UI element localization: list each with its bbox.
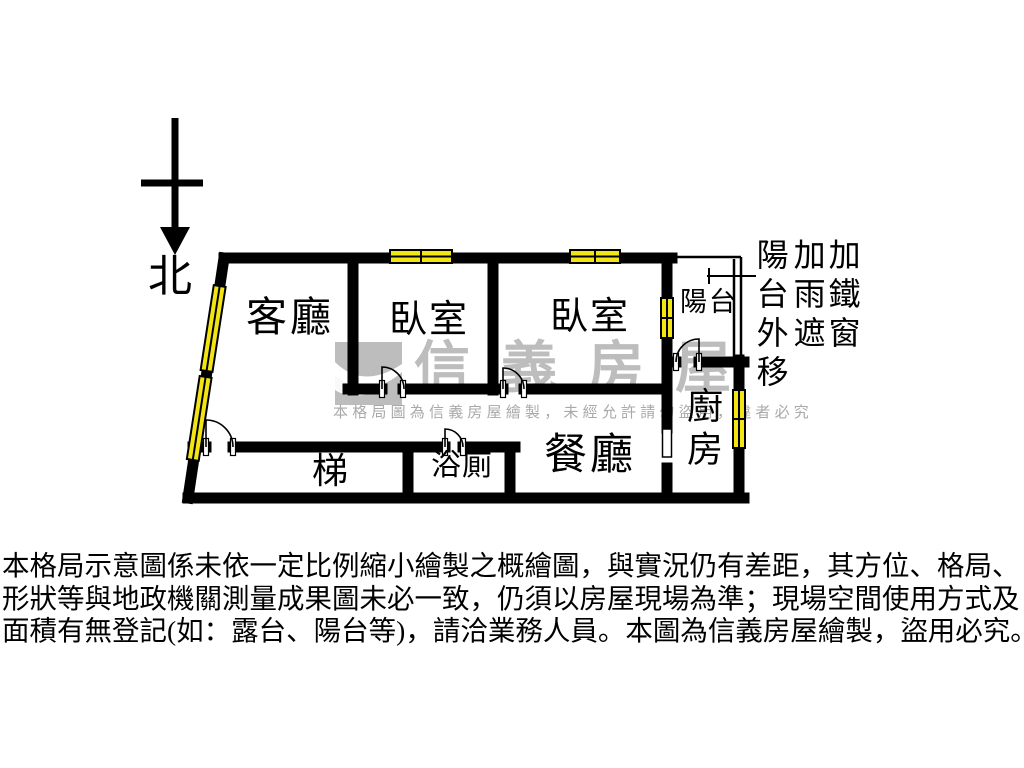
disclaimer-line-2: 形狀等與地政機關測量成果圖未必一致，仍須以房屋現場為準；現場空間使用方式及 [2,583,1024,616]
annotation-balcony-moved-out: 陽台外移 [753,238,787,394]
disclaimer-line-3: 面積有無登記(如：露台、陽台等)，請洽業務人員。本圖為信義房屋繪製，盜用必究。 [2,615,1024,648]
disclaimer-text: 本格局示意圖係未依一定比例縮小繪製之概繪圖，與實況仍有差距，其方位、格局、 形狀… [2,550,1024,648]
room-label-stairs: 梯 [312,453,348,489]
floor-plan-labels: 北 客廳 臥室 臥室 陽台 廚房 餐廳 浴廁 梯 陽台外移 加雨遮 加鐵窗 [0,0,1024,768]
room-label-bathroom: 浴廁 [431,451,493,481]
annotation-rain-shelter: 加雨遮 [790,238,824,355]
room-label-bedroom1: 臥室 [389,301,469,339]
room-label-bedroom2: 臥室 [550,298,630,336]
room-label-living: 客廳 [246,297,334,338]
room-label-balcony: 陽台 [680,289,738,316]
disclaimer-line-1: 本格局示意圖係未依一定比例縮小繪製之概繪圖，與實況仍有差距，其方位、格局、 [2,550,1024,583]
room-label-kitchen: 廚房 [684,387,720,473]
annotation-iron-window: 加鐵窗 [825,238,859,355]
compass-north-label: 北 [148,255,192,299]
room-label-dining: 餐廳 [544,434,636,477]
